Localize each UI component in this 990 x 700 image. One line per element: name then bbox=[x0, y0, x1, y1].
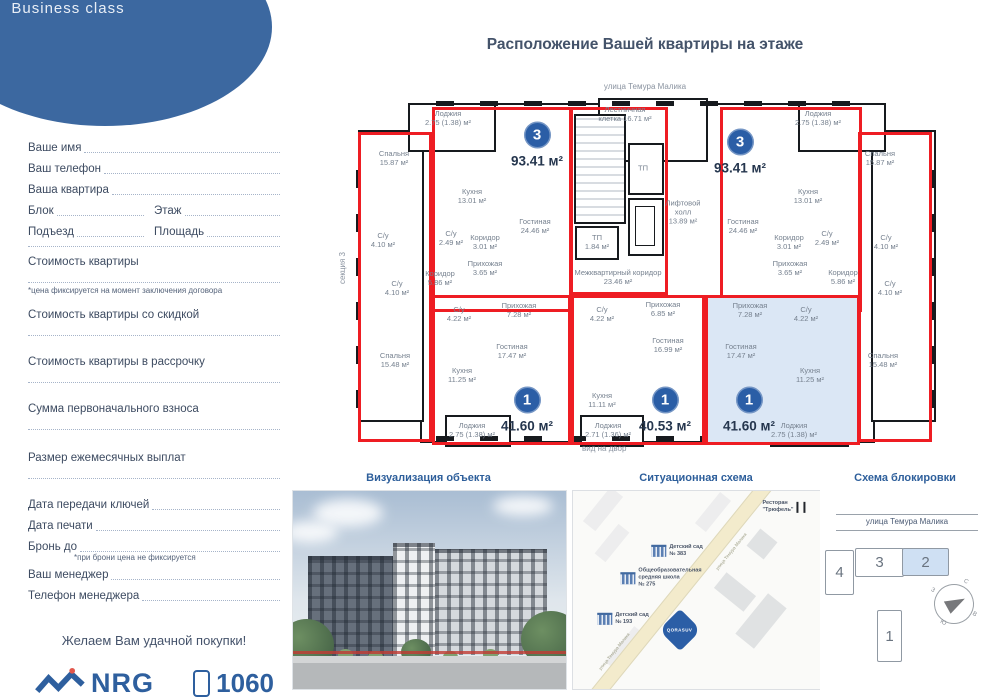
price-line bbox=[28, 282, 280, 283]
staircase bbox=[574, 114, 626, 224]
apartment-number: 1 bbox=[736, 387, 763, 414]
apartment-number: 3 bbox=[727, 129, 754, 156]
nrg-logo: NRG bbox=[34, 666, 154, 700]
field-apartment: Ваша квартира bbox=[28, 176, 280, 197]
discount-price-label: Стоимость квартиры со скидкой bbox=[28, 309, 280, 321]
red-accent-line bbox=[293, 651, 566, 654]
room-label: Лоджия 2.75 (1.38) м² bbox=[449, 421, 495, 439]
field-name-line bbox=[84, 152, 280, 153]
room-label: С/у 4.10 м² bbox=[878, 279, 902, 297]
brand-logo-ellipse: QORASUV Business class bbox=[0, 0, 272, 126]
building-icon bbox=[597, 613, 612, 625]
apartment-badge: 393.41 м² bbox=[511, 122, 563, 169]
block-2-highlighted: 2 bbox=[902, 548, 949, 576]
room-label: Кухня 11.11 м² bbox=[588, 391, 615, 409]
room-label: Прихожая 7.28 м² bbox=[502, 301, 537, 319]
room-label: Коридор 5.86 м² bbox=[828, 268, 858, 286]
room-label: Спальня 15.48 м² bbox=[380, 351, 410, 369]
apartment-badge: 141.60 м² bbox=[723, 387, 775, 434]
flyer-page: QORASUV Business class Ваше имя Ваш теле… bbox=[0, 0, 990, 700]
room-label: Прихожая 6.85 м² bbox=[646, 300, 681, 318]
room-label: Гостиная 17.47 м² bbox=[496, 342, 527, 360]
room-label: С/у 4.22 м² bbox=[447, 305, 471, 323]
field-entrance-line bbox=[77, 236, 144, 237]
room-label: С/у 4.10 м² bbox=[874, 233, 898, 251]
field-phone-label: Ваш телефон bbox=[28, 163, 104, 176]
brand-subtitle: Business class bbox=[0, 0, 158, 17]
monthly-payment-label: Размер ежемесячных выплат bbox=[28, 452, 280, 464]
cloud bbox=[292, 521, 338, 543]
block-3: 3 bbox=[855, 548, 904, 577]
room-label: Спальня 15.87 м² bbox=[379, 149, 409, 167]
manager-phone-label: Телефон менеджера bbox=[28, 590, 142, 603]
apartment-area: 41.60 м² bbox=[501, 419, 553, 434]
field-manager: Ваш менеджер bbox=[28, 561, 280, 582]
wish-text: Желаем Вам удачной покупки! bbox=[28, 633, 280, 648]
room-label: С/у 4.22 м² bbox=[794, 305, 818, 323]
qorasuv-map-marker: QORASUV bbox=[659, 609, 701, 651]
roofline bbox=[435, 549, 547, 553]
apartment-badge: 140.53 м² bbox=[639, 387, 691, 434]
block-1: 1 bbox=[877, 610, 902, 662]
field-floor-label: Этаж bbox=[154, 205, 185, 218]
poi-label: Детский сад № 193 bbox=[615, 612, 648, 626]
map-block bbox=[747, 529, 778, 560]
room-label: С/у 4.22 м² bbox=[590, 305, 614, 323]
field-keys-date: Дата передачи ключей bbox=[28, 491, 280, 512]
building-icon bbox=[620, 572, 635, 584]
floorplan-title: Расположение Вашей квартиры на этаже bbox=[352, 36, 938, 54]
building-visualization bbox=[292, 490, 567, 690]
qorasuv-marker-label: QORASUV bbox=[667, 628, 693, 633]
room-label: Гостиная 17.47 м² bbox=[725, 342, 756, 360]
poi-label: Общеобразовательная средняя школа № 275 bbox=[638, 567, 701, 588]
compass-east: В bbox=[971, 611, 977, 618]
roofline bbox=[308, 556, 393, 560]
map-poi: Общеобразовательная средняя школа № 275 bbox=[620, 567, 701, 588]
manager-phone-line bbox=[142, 600, 280, 601]
apartment-number: 3 bbox=[524, 122, 551, 149]
map-poi: Детский сад № 383 bbox=[651, 544, 702, 558]
section-label: секция 3 bbox=[338, 252, 347, 284]
nrg-brand-name: NRG bbox=[91, 668, 154, 699]
field-floor-line bbox=[185, 215, 281, 216]
visualization-title: Визуализация объекта bbox=[292, 472, 565, 484]
street-line bbox=[836, 514, 978, 515]
discount-price-line bbox=[28, 335, 280, 336]
cloud bbox=[493, 496, 553, 516]
compass-north: С bbox=[962, 578, 969, 585]
room-label: С/у 2.49 м² bbox=[815, 229, 839, 247]
field-phone-line bbox=[104, 173, 280, 174]
installment-price-line bbox=[28, 382, 280, 383]
compass-icon: С В Ю З bbox=[927, 577, 982, 632]
nrg-zigzag-icon bbox=[34, 666, 86, 700]
apartment-area: 40.53 м² bbox=[639, 419, 691, 434]
room-label: Коридор 5.86 м² bbox=[425, 269, 455, 287]
footer: NRG 1060 bbox=[28, 666, 280, 700]
map-poi: QORASUV bbox=[665, 615, 695, 645]
room-label: ТП 1.84 м² bbox=[585, 233, 609, 251]
room-label: Кухня 11.25 м² bbox=[448, 366, 476, 384]
room-label: Прихожая 3.65 м² bbox=[773, 259, 808, 277]
monthly-payment-line bbox=[28, 478, 280, 479]
price-note: *цена фиксируется на момент заключения д… bbox=[28, 286, 280, 295]
installment-price-label: Стоимость квартиры в рассрочку bbox=[28, 356, 280, 368]
poi-label: Детский сад № 383 bbox=[669, 544, 702, 558]
keys-date-label: Дата передачи ключей bbox=[28, 499, 152, 512]
field-block-line bbox=[57, 215, 144, 216]
sidewalk bbox=[293, 656, 566, 663]
room-label: Спальня 15.87 м² bbox=[865, 149, 895, 167]
field-name: Ваше имя bbox=[28, 134, 280, 155]
field-manager-phone: Телефон менеджера bbox=[28, 582, 280, 603]
compass-west: З bbox=[930, 587, 936, 594]
street-top-label: улица Темура Малика bbox=[352, 82, 938, 91]
apartment-area: 93.41 м² bbox=[714, 161, 766, 176]
restaurant-icon bbox=[797, 502, 806, 513]
field-block-label: Блок bbox=[28, 205, 57, 218]
field-block-floor: Блок Этаж bbox=[28, 197, 280, 218]
compass-arrow bbox=[938, 588, 971, 621]
field-phone: Ваш телефон bbox=[28, 155, 280, 176]
situation-title: Ситуационная схема bbox=[572, 472, 820, 484]
room-label: Спальня 15.48 м² bbox=[868, 351, 898, 369]
room-label: Лестничная клетка 16.71 м² bbox=[598, 105, 651, 123]
map-poi: Ресторан "Трюфель" bbox=[762, 500, 805, 514]
yard-view-label: вид на двор bbox=[582, 444, 626, 453]
compass-south: Ю bbox=[939, 619, 947, 627]
street-line bbox=[836, 530, 978, 531]
window-strip bbox=[436, 101, 872, 106]
blocking-scheme: улица Темура Малика 4321 С В Ю З bbox=[820, 490, 990, 695]
price-label: Стоимость квартиры bbox=[28, 256, 280, 268]
manager-label: Ваш менеджер bbox=[28, 569, 111, 582]
roofline bbox=[393, 543, 435, 547]
room-label: Лоджия 2.71 (1.36) м² bbox=[585, 421, 631, 439]
apartment-area: 41.60 м² bbox=[723, 419, 775, 434]
field-entrance-area: Подъезд Площадь bbox=[28, 218, 280, 239]
room-label: Коридор 3.01 м² bbox=[774, 233, 804, 251]
blocking-title: Схема блокировки bbox=[820, 472, 990, 484]
apartment-badge: 393.41 м² bbox=[714, 129, 766, 176]
apartment-number: 1 bbox=[514, 387, 541, 414]
field-print-date: Дата печати bbox=[28, 512, 280, 533]
phone-number: 1060 bbox=[216, 668, 274, 699]
apartment-number: 1 bbox=[652, 387, 679, 414]
field-area-line bbox=[207, 236, 280, 237]
situation-map: улица Темура Малика улица Темура Малика … bbox=[572, 490, 822, 690]
room-label: Коридор 3.01 м² bbox=[470, 233, 500, 251]
phone-icon bbox=[193, 670, 210, 697]
room-label: Лоджия 2.75 (1.38) м² bbox=[795, 109, 841, 127]
room-label: Кухня 13.01 м² bbox=[458, 187, 487, 205]
field-apartment-label: Ваша квартира bbox=[28, 184, 112, 197]
map-poi: Детский сад № 193 bbox=[597, 612, 648, 626]
room-label: Гостиная 16.99 м² bbox=[652, 336, 683, 354]
floorplan: улица Темура Малика секция 3 Лоджия 2 bbox=[352, 92, 938, 462]
apartment-badge: 141.60 м² bbox=[501, 387, 553, 434]
building-icon bbox=[651, 545, 666, 557]
room-label: С/у 2.49 м² bbox=[439, 229, 463, 247]
field-entrance-label: Подъезд bbox=[28, 226, 77, 239]
customer-form: Ваше имя Ваш телефон Ваша квартира Блок … bbox=[28, 134, 280, 700]
map-block bbox=[714, 572, 756, 611]
room-label: Кухня 11.25 м² bbox=[796, 366, 824, 384]
room-label: Прихожая 7.28 м² bbox=[733, 301, 768, 319]
down-payment-line bbox=[28, 429, 280, 430]
room-label: ТП bbox=[638, 164, 648, 173]
reserve-until-label: Бронь до bbox=[28, 541, 80, 554]
room-label: Гостиная 24.46 м² bbox=[727, 217, 758, 235]
room-label: С/у 4.10 м² bbox=[371, 231, 395, 249]
print-date-label: Дата печати bbox=[28, 520, 96, 533]
blocking-street-label: улица Темура Малика bbox=[836, 517, 978, 526]
print-date-line bbox=[96, 530, 280, 531]
divider-line bbox=[28, 246, 280, 247]
field-area-label: Площадь bbox=[154, 226, 207, 239]
room-label: Лоджия 2.75 (1.38) м² bbox=[771, 421, 817, 439]
manager-line bbox=[111, 579, 280, 580]
room-label: С/у 4.10 м² bbox=[385, 279, 409, 297]
down-payment-label: Сумма первоначального взноса bbox=[28, 403, 280, 415]
room-label: Кухня 13.01 м² bbox=[794, 187, 823, 205]
block-4: 4 bbox=[825, 550, 854, 595]
road bbox=[293, 663, 566, 689]
phone-block: 1060 bbox=[193, 668, 274, 699]
room-label: Гостиная 24.46 м² bbox=[519, 217, 550, 235]
field-reserve-until: Бронь до bbox=[28, 533, 280, 554]
poi-label: Ресторан "Трюфель" bbox=[762, 500, 793, 514]
room-label: Межквартирный коридор 23.46 м² bbox=[574, 268, 661, 286]
room-label: Прихожая 3.65 м² bbox=[468, 259, 503, 277]
field-name-label: Ваше имя bbox=[28, 142, 84, 155]
field-apartment-line bbox=[112, 194, 280, 195]
reserve-until-line bbox=[80, 551, 280, 552]
apartment-area: 93.41 м² bbox=[511, 154, 563, 169]
map-block bbox=[595, 524, 630, 562]
elevator-car bbox=[635, 206, 655, 246]
keys-date-line bbox=[152, 509, 280, 510]
room-label: Лоджия 2.75 (1.38) м² bbox=[425, 109, 471, 127]
room-label: Лифтовой холл 13.89 м² bbox=[666, 199, 701, 226]
reserve-note: *при брони цена не фиксируется bbox=[74, 553, 280, 561]
